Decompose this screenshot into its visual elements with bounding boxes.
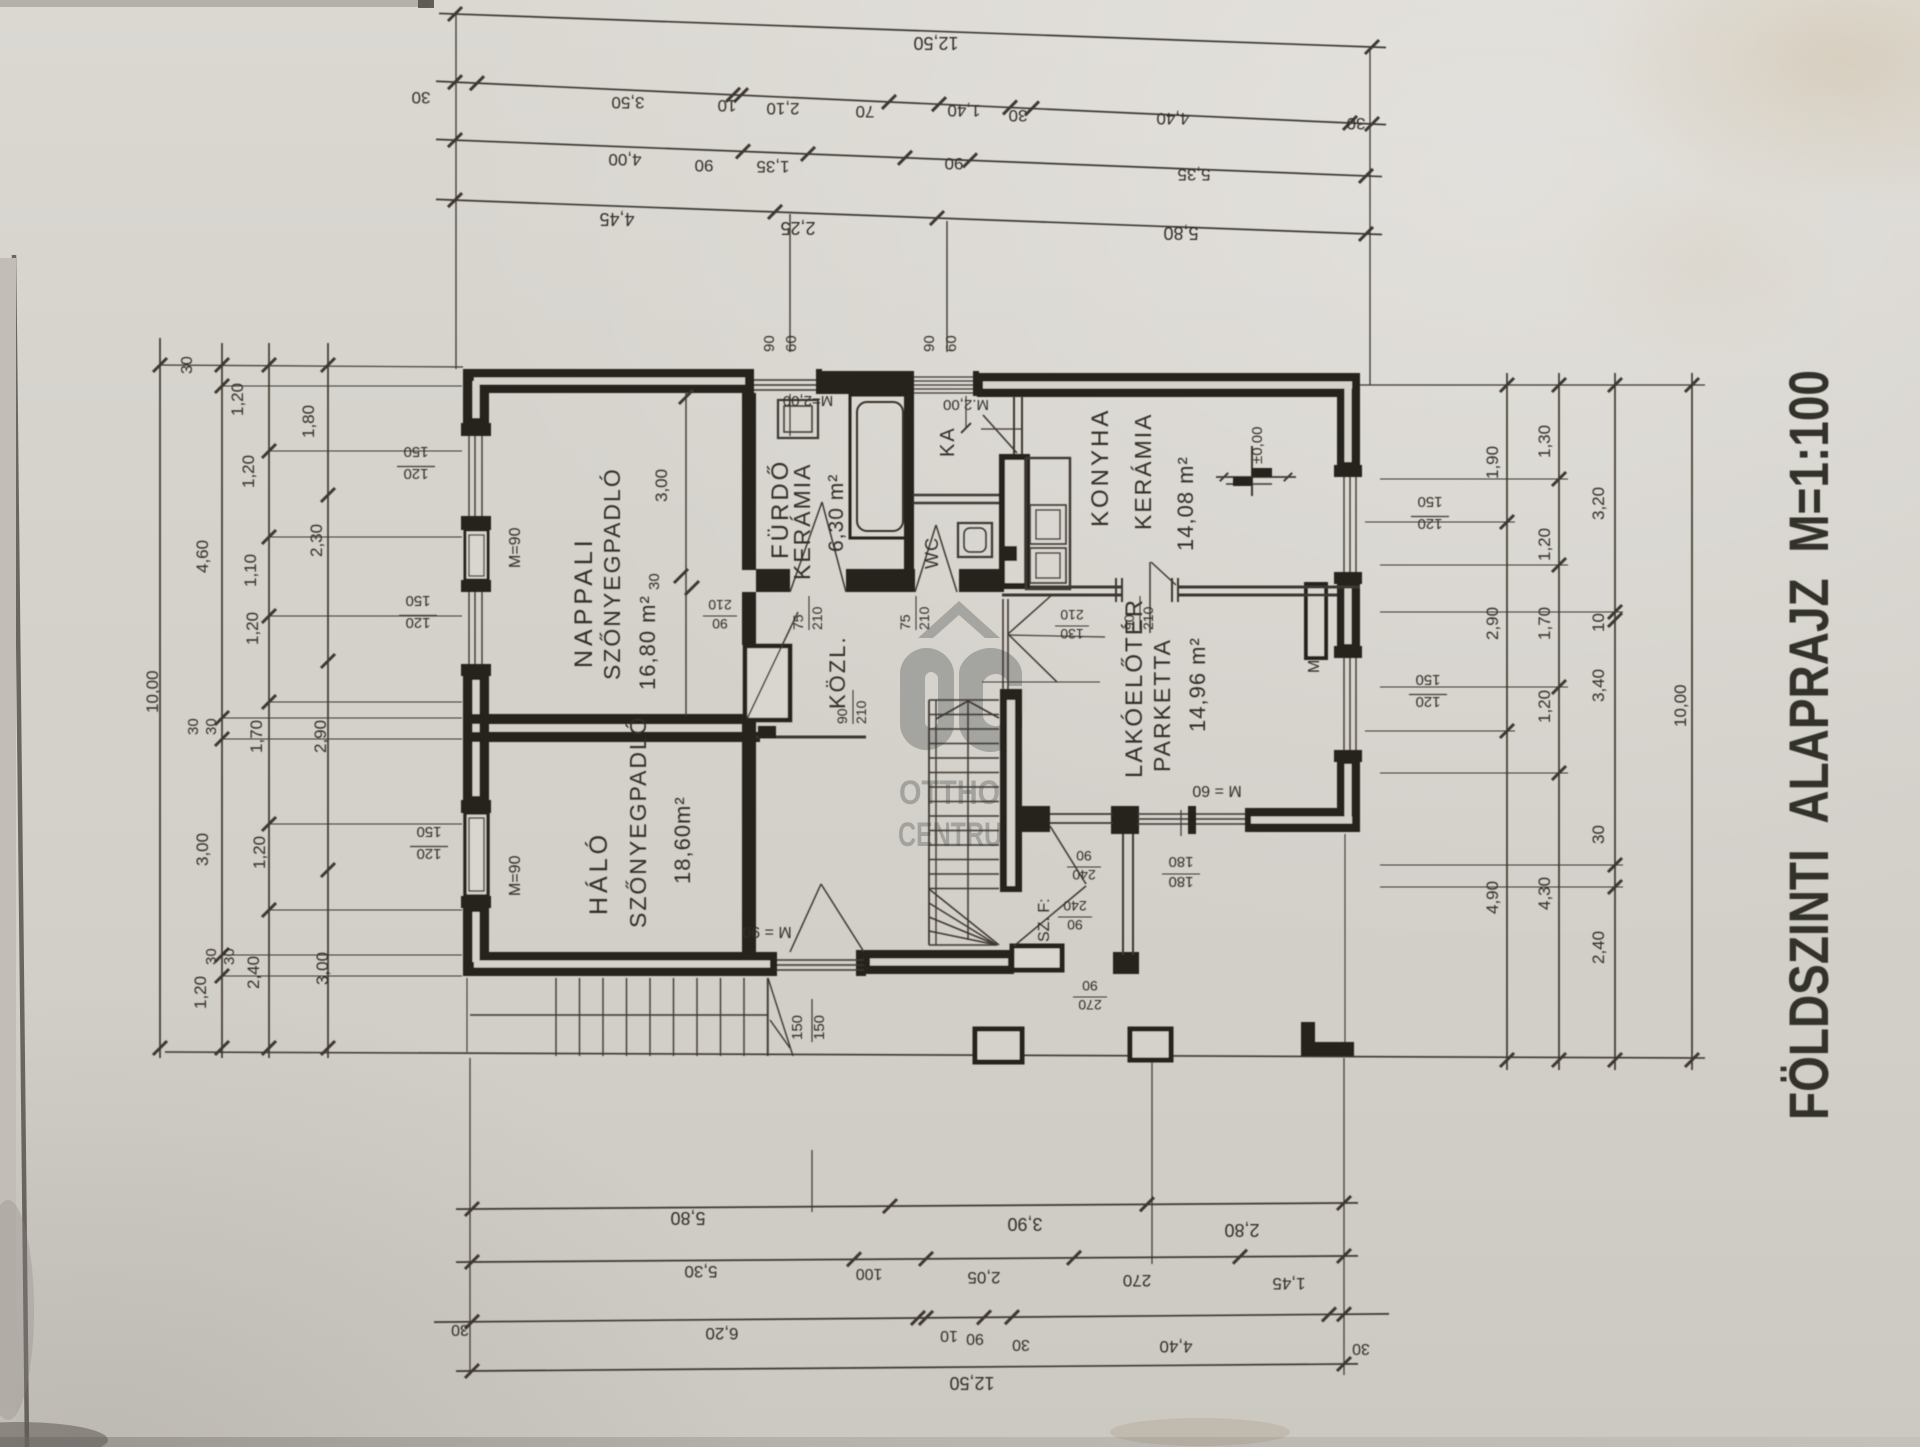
svg-text:30: 30: [646, 573, 663, 590]
svg-text:3,00: 3,00: [193, 833, 212, 866]
svg-text:1,20: 1,20: [228, 383, 247, 416]
svg-text:30: 30: [1589, 825, 1608, 844]
svg-text:240: 240: [1072, 867, 1096, 883]
svg-text:4,45: 4,45: [599, 209, 634, 229]
svg-text:210: 210: [809, 606, 825, 630]
svg-text:HÁLÓ: HÁLÓ: [584, 831, 613, 915]
svg-text:10: 10: [940, 1327, 958, 1344]
svg-text:100: 100: [856, 1265, 883, 1282]
svg-text:KONYHA: KONYHA: [1087, 408, 1114, 527]
svg-text:90: 90: [834, 708, 850, 724]
svg-text:150: 150: [403, 443, 428, 460]
svg-text:90: 90: [761, 335, 778, 352]
svg-text:10,00: 10,00: [1671, 684, 1690, 727]
svg-text:5,80: 5,80: [1163, 223, 1198, 243]
svg-text:75: 75: [790, 614, 806, 630]
svg-text:1,80: 1,80: [299, 405, 318, 438]
svg-text:3,00: 3,00: [313, 952, 332, 985]
svg-text:270: 270: [1123, 1271, 1151, 1290]
svg-text:4,30: 4,30: [1535, 877, 1554, 910]
svg-text:2,40: 2,40: [244, 956, 263, 989]
svg-text:2,05: 2,05: [967, 1268, 1000, 1287]
svg-text:6,20: 6,20: [705, 1324, 738, 1343]
svg-text:1,20: 1,20: [239, 455, 258, 488]
svg-text:210: 210: [1060, 607, 1084, 623]
svg-text:6,30 m²: 6,30 m²: [825, 474, 848, 552]
svg-text:150: 150: [789, 1015, 806, 1040]
svg-text:18,60m²: 18,60m²: [670, 796, 695, 884]
svg-text:3,50: 3,50: [611, 93, 644, 112]
svg-text:1,90: 1,90: [1483, 446, 1502, 479]
svg-text:150: 150: [1417, 493, 1442, 510]
svg-text:90: 90: [1076, 848, 1092, 864]
svg-text:FÖLDSZINTI ALAPRAJZ M=1:100: FÖLDSZINTI ALAPRAJZ M=1:100: [1777, 370, 1840, 1120]
svg-text:M=90: M=90: [507, 527, 524, 568]
svg-text:1,35: 1,35: [756, 157, 789, 176]
svg-text:120: 120: [416, 845, 441, 862]
svg-text:3,00: 3,00: [652, 469, 671, 502]
svg-text:KÖZL.: KÖZL.: [825, 635, 850, 709]
svg-text:M=90: M=90: [507, 855, 524, 896]
svg-text:1,40: 1,40: [947, 101, 980, 120]
svg-text:180: 180: [1168, 873, 1193, 890]
svg-text:60: 60: [783, 335, 800, 352]
svg-text:75: 75: [897, 614, 913, 630]
svg-text:150: 150: [416, 823, 441, 840]
svg-text:1,10: 1,10: [241, 554, 260, 587]
svg-text:210: 210: [708, 597, 732, 613]
svg-text:M = 60: M = 60: [1192, 782, 1241, 799]
svg-text:180: 180: [1168, 853, 1193, 870]
svg-text:4,00: 4,00: [608, 150, 641, 169]
svg-text:270: 270: [1078, 997, 1102, 1013]
svg-text:SZŐNYEGPADLÓ: SZŐNYEGPADLÓ: [625, 715, 651, 928]
svg-text:14,08 m²: 14,08 m²: [1173, 456, 1198, 551]
svg-text:210: 210: [916, 606, 932, 630]
svg-text:4,60: 4,60: [193, 540, 212, 573]
svg-text:30: 30: [221, 948, 238, 965]
svg-text:210: 210: [1140, 606, 1156, 630]
svg-text:1,30: 1,30: [1535, 425, 1554, 458]
svg-text:M = 90: M = 90: [742, 923, 791, 940]
svg-text:90: 90: [695, 156, 714, 175]
svg-text:30: 30: [203, 948, 220, 965]
svg-text:240: 240: [1063, 898, 1087, 914]
svg-text:10,00: 10,00: [143, 670, 162, 713]
svg-text:120: 120: [1417, 515, 1442, 532]
svg-text:30: 30: [412, 88, 431, 107]
svg-text:30: 30: [1352, 1340, 1370, 1357]
svg-text:90: 90: [921, 335, 938, 352]
svg-text:3,20: 3,20: [1589, 487, 1608, 520]
svg-text:90: 90: [1067, 917, 1083, 933]
svg-text:WC: WC: [922, 537, 942, 569]
svg-text:150: 150: [405, 592, 430, 609]
svg-text:130: 130: [1060, 626, 1084, 642]
svg-text:14,96 m²: 14,96 m²: [1185, 637, 1210, 732]
svg-text:60: 60: [943, 335, 960, 352]
svg-text:SZŐNYEGPADLÓ: SZŐNYEGPADLÓ: [599, 467, 625, 680]
svg-text:1,20: 1,20: [1535, 690, 1554, 723]
svg-text:150: 150: [811, 1015, 828, 1040]
svg-text:150: 150: [1415, 671, 1440, 688]
svg-text:4,40: 4,40: [1159, 1337, 1192, 1356]
svg-text:2,10: 2,10: [766, 99, 799, 118]
svg-text:NAPPALI: NAPPALI: [570, 536, 598, 668]
svg-text:30: 30: [1012, 1336, 1030, 1353]
svg-text:10: 10: [1589, 613, 1608, 632]
svg-text:210: 210: [853, 700, 869, 724]
svg-text:16,80 m²: 16,80 m²: [635, 595, 660, 690]
svg-text:1,20: 1,20: [243, 612, 262, 645]
svg-text:10: 10: [718, 96, 737, 115]
svg-text:90: 90: [1082, 978, 1098, 994]
svg-text:90: 90: [1121, 614, 1137, 630]
svg-text:90: 90: [945, 154, 964, 173]
svg-text:2,30: 2,30: [307, 524, 326, 557]
svg-text:4,40: 4,40: [1156, 109, 1189, 128]
svg-text:30: 30: [203, 718, 220, 735]
svg-text:1,20: 1,20: [191, 976, 210, 1009]
svg-text:KA: KA: [937, 426, 959, 457]
svg-text:3,40: 3,40: [1589, 669, 1608, 702]
svg-text:30: 30: [185, 718, 202, 735]
svg-text:M.2,00: M.2,00: [943, 396, 989, 413]
svg-text:1,70: 1,70: [247, 720, 266, 753]
svg-text:2,25: 2,25: [780, 218, 815, 238]
svg-text:30: 30: [1347, 114, 1366, 133]
svg-text:3,90: 3,90: [1007, 1214, 1042, 1234]
svg-text:1,20: 1,20: [250, 836, 269, 869]
svg-text:KERÁMIA: KERÁMIA: [1130, 412, 1156, 530]
svg-text:SZ. F:: SZ. F:: [1036, 898, 1053, 942]
svg-text:30: 30: [1009, 106, 1028, 125]
svg-text:30: 30: [451, 1321, 469, 1338]
svg-text:4,90: 4,90: [1483, 881, 1502, 914]
svg-text:120: 120: [1415, 693, 1440, 710]
svg-text:2,90: 2,90: [311, 720, 330, 753]
svg-text:1,45: 1,45: [1272, 1274, 1305, 1293]
svg-text:5,35: 5,35: [1177, 165, 1210, 184]
svg-text:120: 120: [403, 465, 428, 482]
svg-text:70: 70: [856, 102, 875, 121]
svg-text:120: 120: [405, 614, 430, 631]
svg-text:90: 90: [712, 616, 728, 632]
svg-text:PARKETTA: PARKETTA: [1149, 638, 1175, 772]
svg-text:12,50: 12,50: [949, 1373, 994, 1393]
svg-text:KERÁMIA: KERÁMIA: [789, 462, 815, 580]
svg-text:2,80: 2,80: [1224, 1220, 1259, 1240]
svg-text:12,50: 12,50: [913, 33, 958, 53]
svg-text:90: 90: [966, 1330, 984, 1347]
svg-text:1,20: 1,20: [1535, 528, 1554, 561]
svg-text:5,80: 5,80: [670, 1208, 705, 1228]
svg-text:±0,00: ±0,00: [1249, 427, 1266, 464]
svg-text:M=2,00: M=2,00: [783, 392, 833, 409]
svg-text:2,40: 2,40: [1589, 931, 1608, 964]
svg-text:5,30: 5,30: [684, 1262, 717, 1281]
